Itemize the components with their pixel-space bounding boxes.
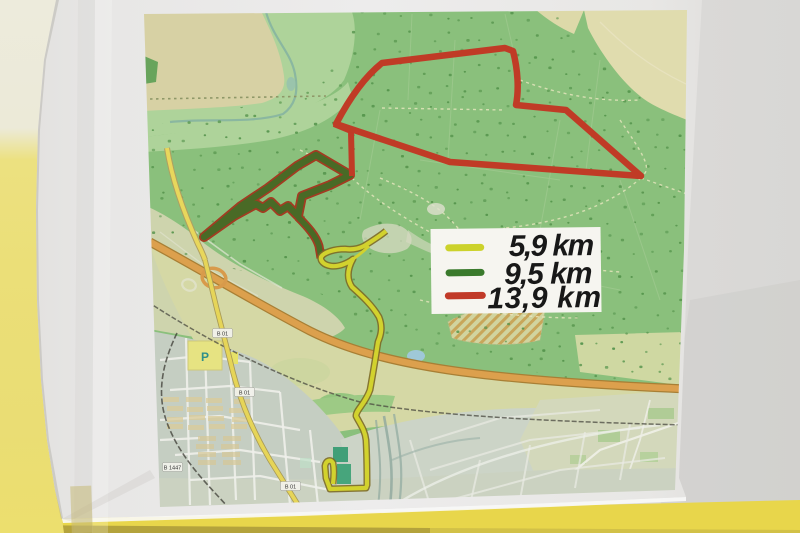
svg-text:B 01: B 01 — [217, 332, 228, 338]
svg-text:B 01: B 01 — [285, 485, 296, 491]
svg-text:P: P — [201, 350, 209, 364]
svg-text:B 1447: B 1447 — [164, 466, 181, 472]
svg-text:B 01: B 01 — [239, 391, 250, 397]
svg-text:13,9 km: 13,9 km — [487, 281, 602, 315]
